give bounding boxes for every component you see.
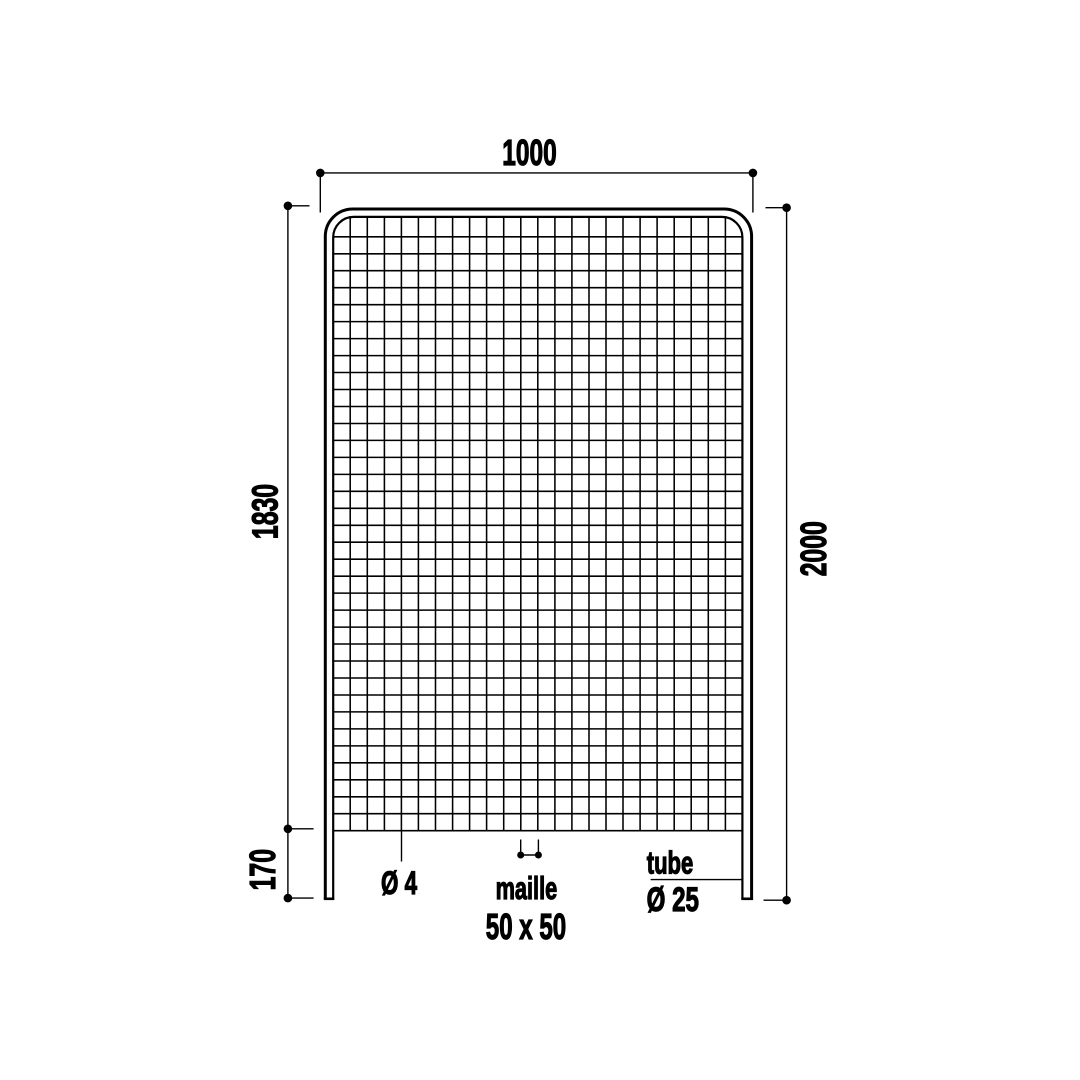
svg-text:1000: 1000 (502, 132, 556, 173)
svg-text:170: 170 (243, 849, 284, 890)
svg-text:tube: tube (647, 845, 694, 881)
svg-text:2000: 2000 (794, 521, 835, 576)
svg-text:maille: maille (496, 871, 558, 906)
svg-text:Ø 4: Ø 4 (381, 865, 418, 901)
svg-text:Ø 25: Ø 25 (647, 881, 699, 919)
svg-text:50 x 50: 50 x 50 (486, 907, 566, 947)
svg-text:1830: 1830 (245, 484, 286, 539)
